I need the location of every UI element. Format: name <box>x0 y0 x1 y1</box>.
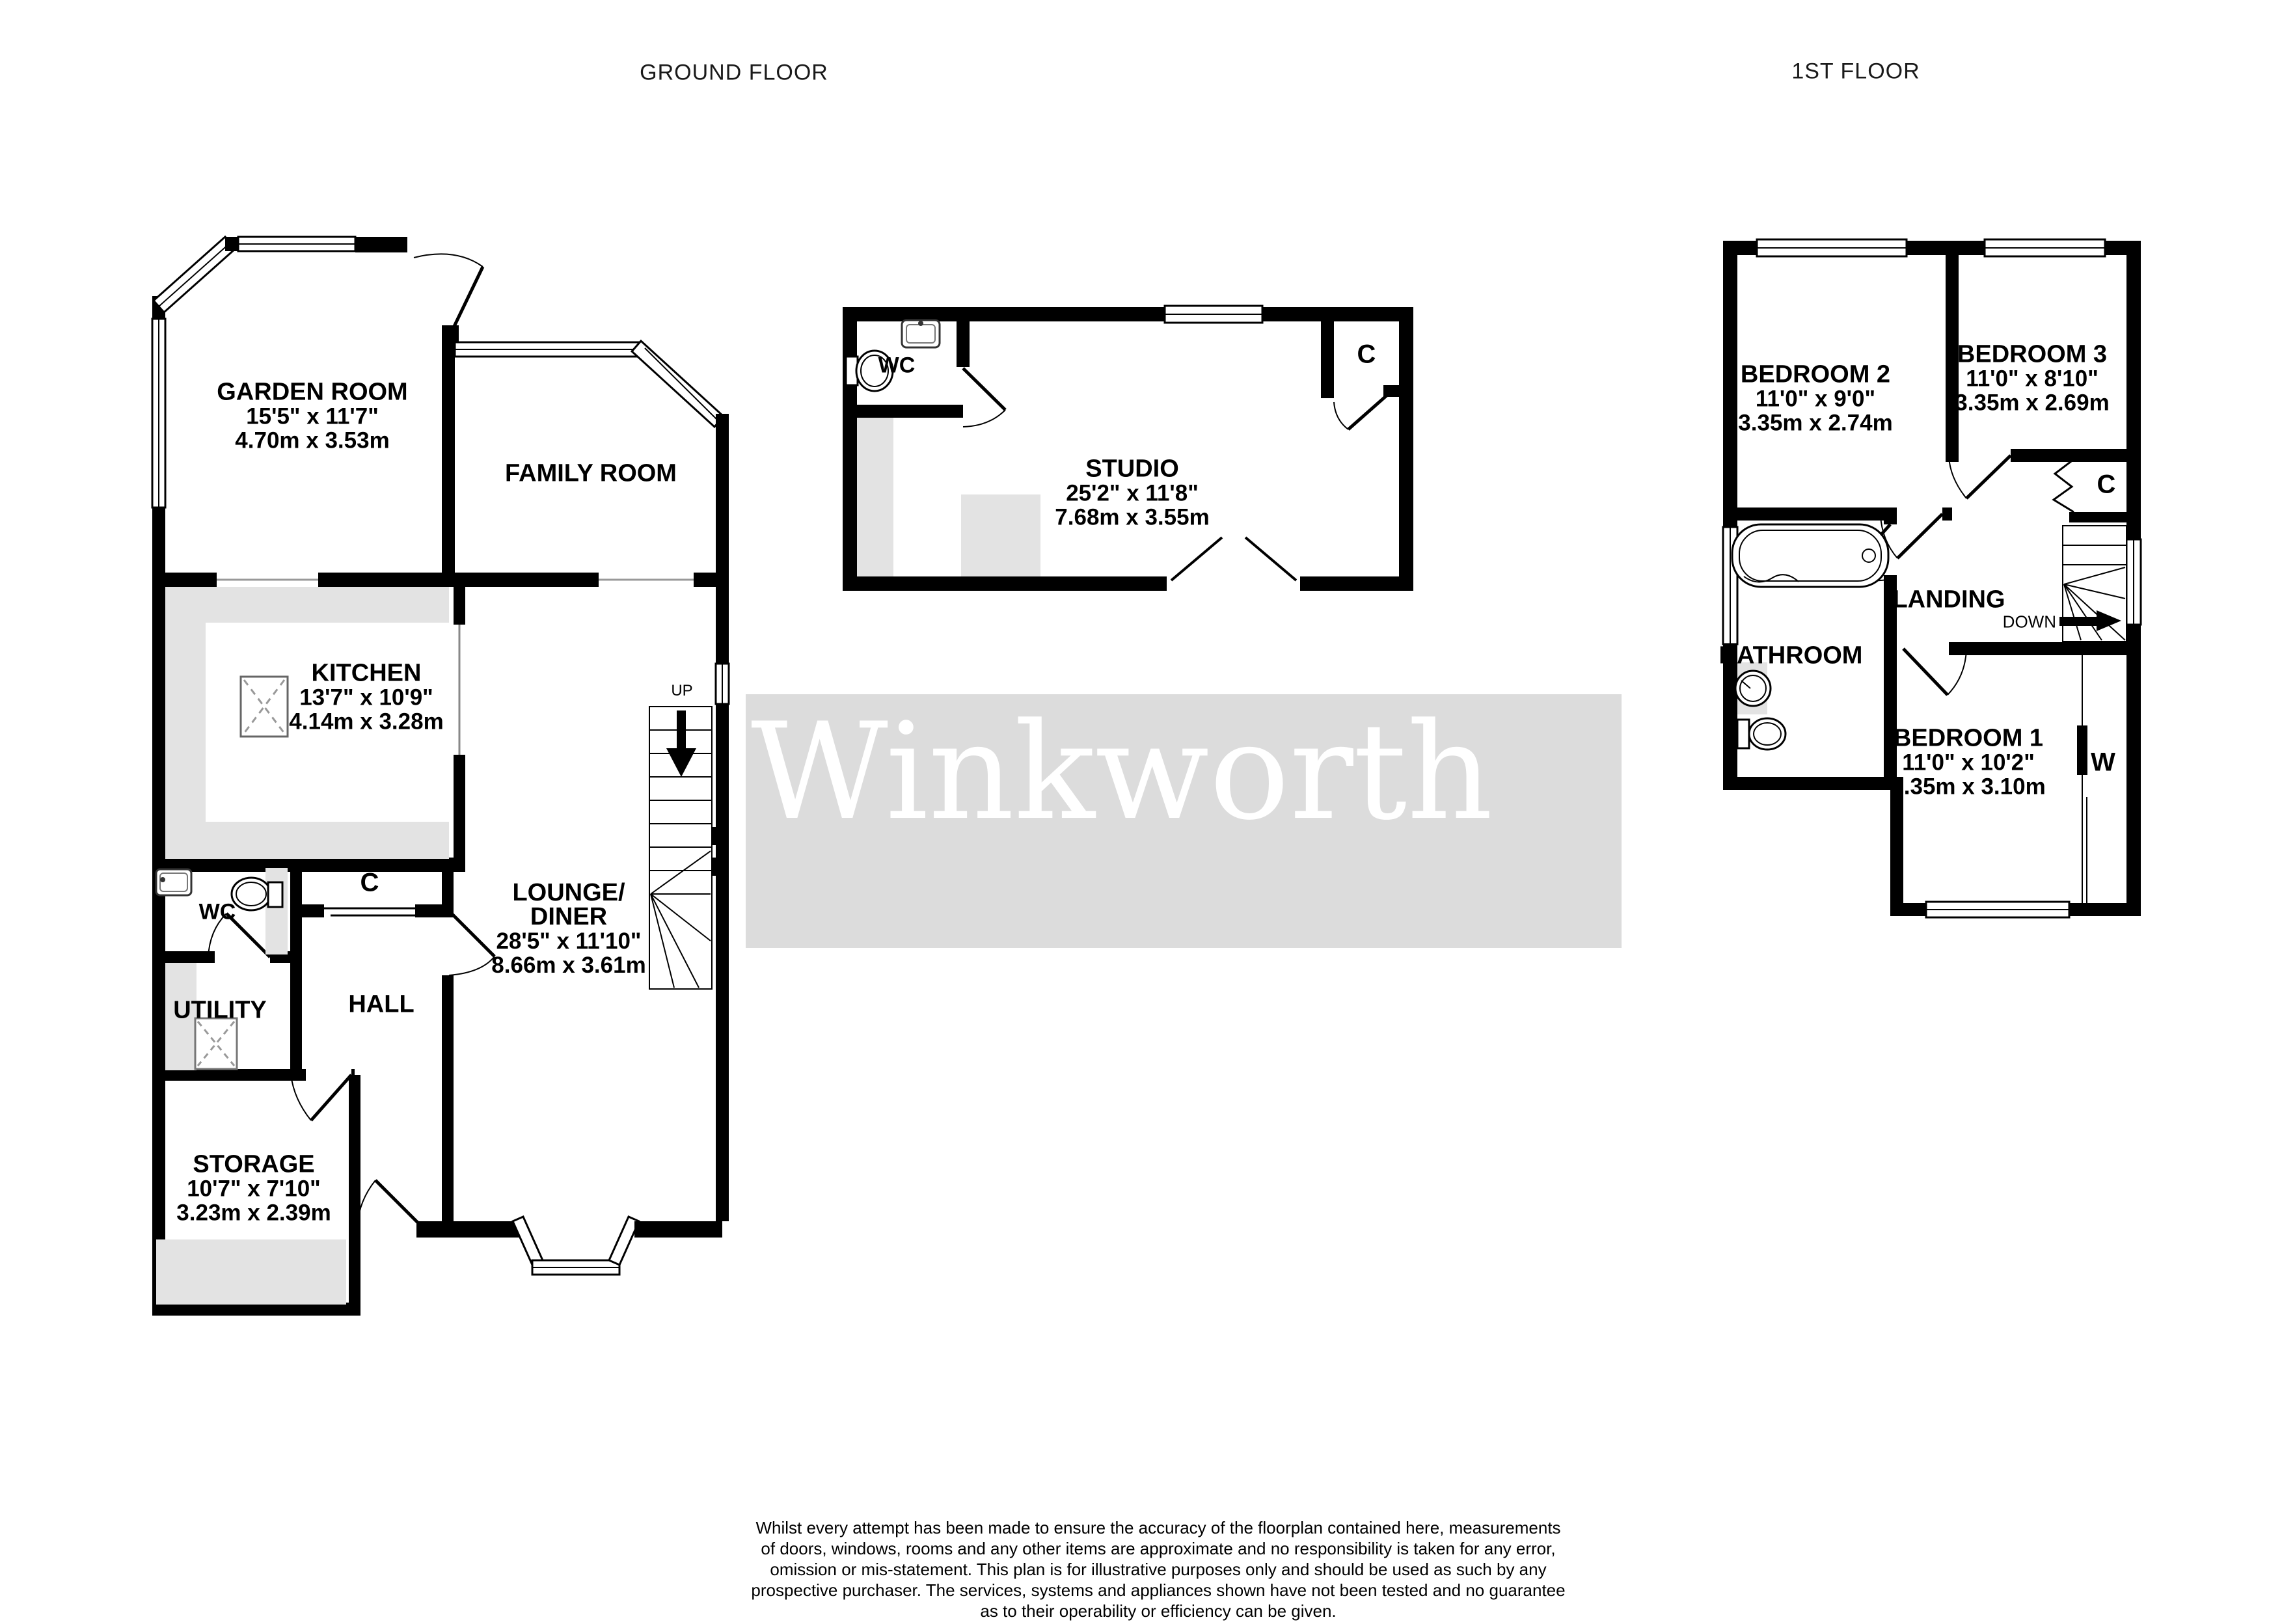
utility-label: UTILITY <box>173 999 267 1023</box>
ground-floor-title: GROUND FLOOR <box>640 61 828 86</box>
bathtub-icon <box>1732 524 1888 587</box>
wc-studio-label: WC <box>878 353 916 379</box>
bedroom3-label: BEDROOM 3 11'0" x 8'10" 3.35m x 2.69m <box>1955 343 2109 415</box>
bathroom-label: BATHROOM <box>1719 644 1863 668</box>
bedroom2-label: BEDROOM 2 11'0" x 9'0" 3.35m x 2.74m <box>1738 363 1892 435</box>
stairs-down-label: DOWN <box>2003 612 2056 632</box>
wc-ground-toilet-icon <box>232 878 282 910</box>
floorplan-page: Winkworth <box>0 0 2282 1624</box>
garden-room-label: GARDEN ROOM 15'5" x 11'7" 4.70m x 3.53m <box>217 381 407 453</box>
stairs-up-label: UP <box>671 682 692 700</box>
disclaimer-line: prospective purchaser. The services, sys… <box>751 1580 1565 1601</box>
hob-icon <box>241 677 288 737</box>
footer-disclaimer: Whilst every attempt has been made to en… <box>751 1517 1565 1624</box>
studio-label: STUDIO 25'2" x 11'8" 7.68m x 3.55m <box>1055 457 1209 530</box>
landing-label: LANDING <box>1892 588 2005 612</box>
studio-floor-gray <box>857 418 1040 576</box>
ground-floor-windows <box>152 319 729 704</box>
studio-walls <box>843 306 1413 592</box>
first-floor-title: 1ST FLOOR <box>1791 59 1920 85</box>
lounge-diner-label: LOUNGE/ DINER 28'5" x 11'10" 8.66m x 3.6… <box>491 881 645 977</box>
storage-label: STORAGE 10'7" x 7'10" 3.23m x 2.39m <box>176 1153 331 1225</box>
wardrobe-divider <box>2082 655 2087 903</box>
disclaimer-line: Whilst every attempt has been made to en… <box>751 1517 1565 1538</box>
kitchen-label: KITCHEN 13'7" x 10'9" 4.14m x 3.28m <box>289 662 443 734</box>
utility-appliance-icon <box>195 1018 237 1069</box>
disclaimer-line: omission or mis-statement. This plan is … <box>751 1559 1565 1580</box>
cupboard-bedroom3-label: C <box>2097 470 2116 500</box>
disclaimer-line: as to their operability or efficiency ca… <box>751 1601 1565 1621</box>
wc-studio-sink-icon <box>902 320 940 347</box>
disclaimer-line: of doors, windows, rooms and any other i… <box>751 1538 1565 1559</box>
bedroom1-label: BEDROOM 1 11'0" x 10'2" 3.35m x 3.10m <box>1891 727 2045 799</box>
family-room-label: FAMILY ROOM <box>505 462 677 486</box>
wc-ground-label: WC <box>199 900 236 925</box>
cupboard-studio-label: C <box>1357 340 1376 370</box>
metropix-credit: Made with Metropix ©2025 <box>751 1621 1565 1624</box>
cupboard-ground-label: C <box>360 869 379 898</box>
bathroom-toilet-icon <box>1737 718 1786 750</box>
hall-label: HALL <box>348 993 414 1017</box>
wc-ground-sink-icon <box>156 869 191 895</box>
wardrobe-label: W <box>2091 748 2115 778</box>
floorplan-drawing <box>0 0 2282 1624</box>
bathroom-sink-icon <box>1735 662 1771 714</box>
